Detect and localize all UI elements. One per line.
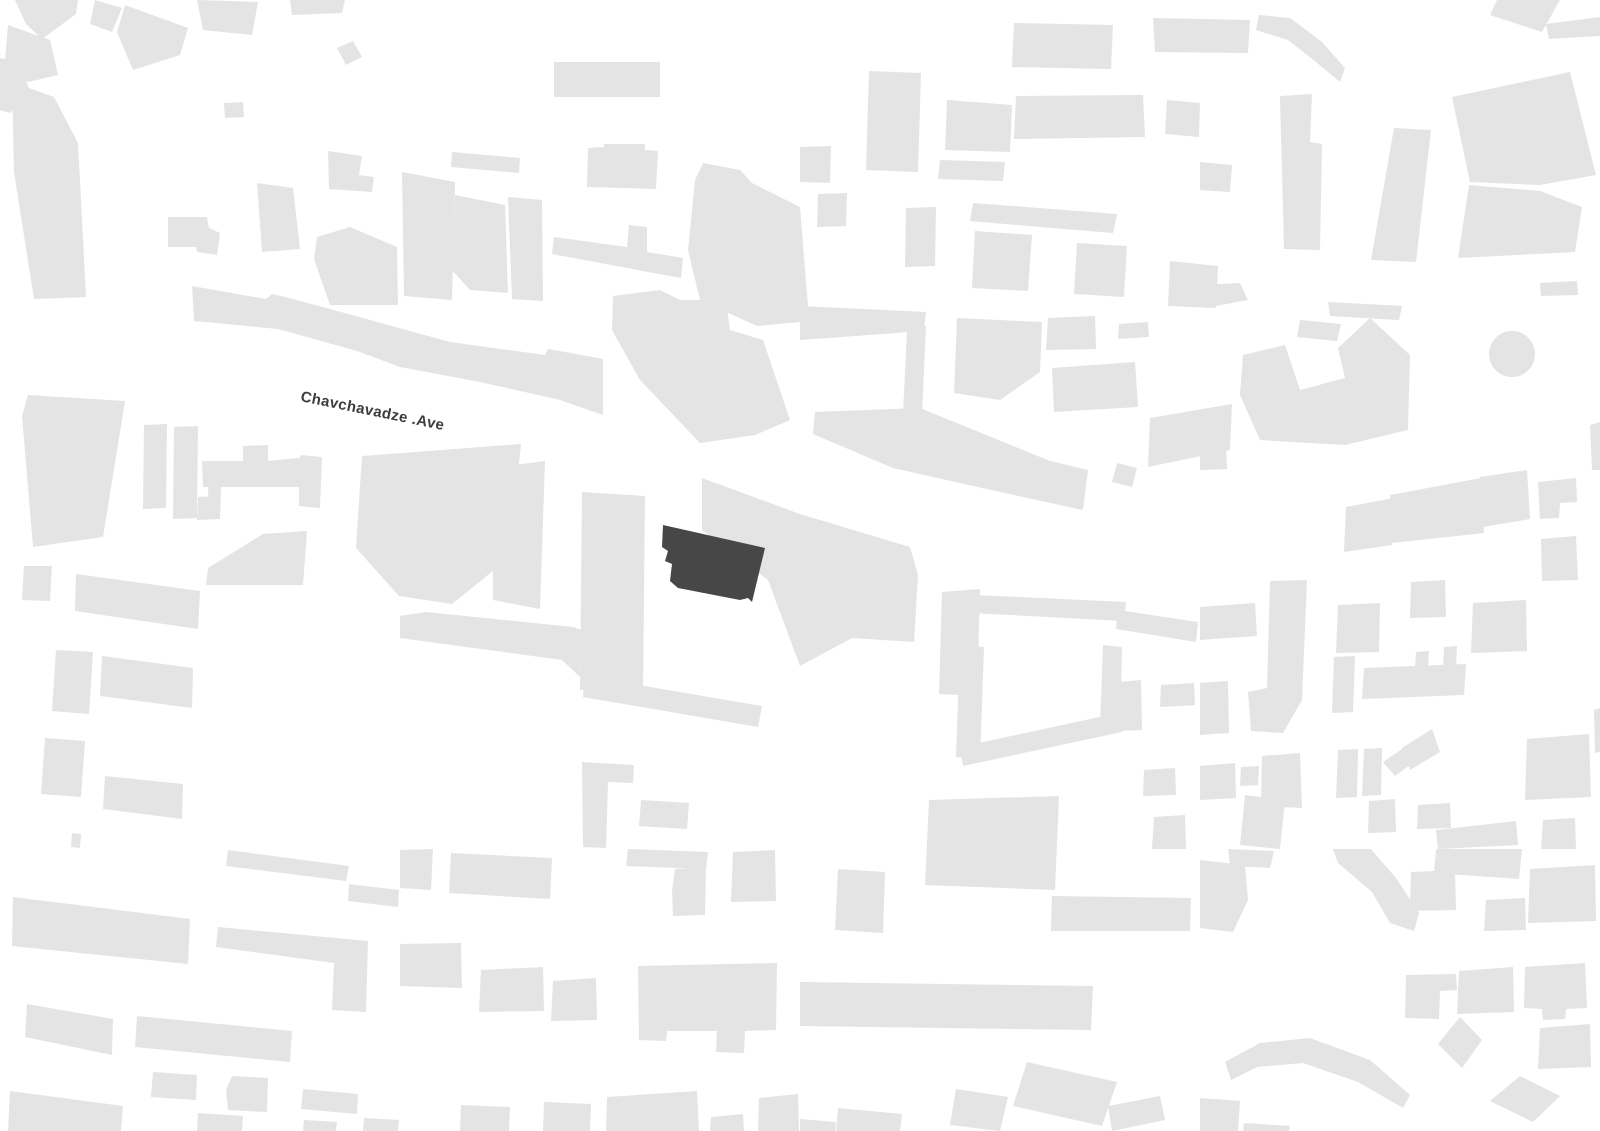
roundabout-circle xyxy=(1489,331,1535,377)
building-footprint xyxy=(1471,600,1527,653)
building-footprint xyxy=(626,849,708,869)
building-footprint xyxy=(1200,443,1227,470)
building-footprint xyxy=(41,738,85,797)
building-footprint xyxy=(1118,322,1149,339)
building-footprint xyxy=(1362,748,1382,796)
building-footprint xyxy=(1116,610,1198,642)
building-footprint xyxy=(903,326,926,415)
building-footprint xyxy=(337,41,362,65)
street-label: Chavchavadze .Ave xyxy=(299,388,446,434)
building-footprint xyxy=(1540,281,1578,296)
building-footprint xyxy=(800,982,1093,1030)
building-footprint xyxy=(400,849,433,890)
building-footprint xyxy=(1200,162,1232,192)
building-footprint xyxy=(117,5,188,70)
building-footprint xyxy=(800,1119,836,1131)
building-footprint xyxy=(1240,795,1285,849)
building-footprint xyxy=(1013,1062,1117,1126)
building-footprint xyxy=(583,676,762,727)
building-footprint xyxy=(925,796,1059,890)
building-footprint xyxy=(206,531,307,585)
building-footprint xyxy=(400,943,462,988)
building-footprint xyxy=(1200,681,1229,735)
building-footprint xyxy=(449,853,552,899)
building-footprint xyxy=(1458,185,1582,258)
building-footprint xyxy=(348,884,399,907)
building-footprint xyxy=(1160,683,1195,707)
buildings-layer xyxy=(0,0,1600,1131)
building-footprint xyxy=(1528,865,1596,923)
building-footprint xyxy=(1243,1123,1290,1131)
building-footprint xyxy=(835,869,885,933)
building-footprint xyxy=(1594,708,1600,753)
building-footprint xyxy=(52,650,93,714)
building-footprint xyxy=(451,152,520,173)
building-footprint xyxy=(1052,362,1138,412)
building-footprint xyxy=(1152,815,1186,849)
building-footprint xyxy=(1200,860,1248,932)
building-footprint xyxy=(972,231,1032,291)
building-footprint xyxy=(800,146,831,183)
building-footprint xyxy=(8,1091,123,1131)
building-footprint xyxy=(1541,818,1576,849)
building-footprint xyxy=(1200,283,1248,308)
building-footprint xyxy=(202,445,322,519)
building-footprint xyxy=(135,1016,292,1062)
building-footprint xyxy=(314,227,398,305)
building-footprint xyxy=(1143,768,1176,796)
building-footprint xyxy=(1538,1024,1591,1069)
building-footprint xyxy=(12,82,86,299)
building-footprint xyxy=(103,776,183,819)
building-footprint xyxy=(1333,849,1419,931)
building-footprint xyxy=(1452,72,1596,185)
building-footprint xyxy=(290,0,345,15)
building-footprint xyxy=(813,408,1088,510)
building-footprint xyxy=(587,144,658,189)
building-footprint xyxy=(328,151,374,192)
building-footprint xyxy=(1344,498,1394,552)
building-footprint xyxy=(905,207,936,267)
building-footprint xyxy=(192,286,603,415)
building-footprint xyxy=(580,492,645,695)
building-footprint xyxy=(710,1114,744,1131)
building-footprint xyxy=(970,203,1117,233)
building-footprint xyxy=(1538,478,1577,519)
building-footprint xyxy=(1590,422,1600,470)
building-footprint xyxy=(197,0,258,35)
building-footprint xyxy=(731,850,776,902)
building-footprint xyxy=(1362,664,1466,699)
building-footprint xyxy=(1336,603,1380,653)
site-plan-map: Chavchavadze .Ave xyxy=(0,0,1600,1131)
building-footprint xyxy=(866,71,921,172)
building-footprint xyxy=(90,0,122,32)
building-footprint xyxy=(363,1118,399,1131)
building-footprint xyxy=(1484,898,1526,931)
site-plan-page: Chavchavadze .Ave xyxy=(0,0,1600,1131)
building-footprint xyxy=(226,1076,268,1112)
building-footprint xyxy=(954,318,1042,400)
building-footprint xyxy=(1336,749,1358,798)
building-footprint xyxy=(303,1120,337,1131)
building-footprint xyxy=(1240,766,1259,786)
building-footprint xyxy=(1443,646,1457,668)
building-footprint xyxy=(22,395,125,547)
building-footprint xyxy=(817,193,847,227)
building-footprint xyxy=(639,800,689,829)
building-footprint xyxy=(1200,763,1236,800)
building-footprint xyxy=(1046,316,1096,350)
building-footprint xyxy=(22,566,52,601)
building-footprint xyxy=(1405,974,1457,1019)
building-footprint xyxy=(1200,603,1257,640)
building-footprint xyxy=(1332,656,1355,713)
building-footprint xyxy=(836,1108,902,1131)
building-footprint xyxy=(582,762,634,848)
building-footprint xyxy=(1112,463,1137,487)
building-footprint xyxy=(1165,100,1200,137)
building-footprint xyxy=(1297,320,1341,341)
building-footprint xyxy=(945,100,1012,152)
building-footprint xyxy=(400,612,581,677)
building-footprint xyxy=(143,424,167,509)
building-footprint xyxy=(301,1089,358,1114)
building-footprint xyxy=(1012,23,1113,69)
building-footprint xyxy=(1368,799,1396,833)
building-footprint xyxy=(168,217,220,255)
building-footprint xyxy=(75,574,200,629)
building-footprint xyxy=(12,897,190,964)
building-footprint xyxy=(1415,651,1429,668)
building-footprint xyxy=(508,197,543,301)
building-footprint xyxy=(758,1094,799,1131)
building-footprint xyxy=(452,195,508,293)
building-footprint xyxy=(1153,18,1250,53)
building-footprint xyxy=(257,183,300,252)
building-footprint xyxy=(606,1091,699,1131)
building-footprint xyxy=(1457,967,1514,1014)
building-footprint xyxy=(1014,95,1145,139)
building-footprint xyxy=(1541,536,1578,581)
building-footprint xyxy=(226,850,349,881)
building-footprint xyxy=(552,225,683,278)
building-footprint xyxy=(1390,478,1484,543)
building-footprint xyxy=(1546,17,1600,39)
building-footprint xyxy=(1074,243,1127,297)
building-footprint xyxy=(1248,580,1307,733)
building-footprint xyxy=(1200,1098,1240,1131)
building-footprint xyxy=(672,867,706,916)
building-footprint xyxy=(1225,1038,1410,1108)
building-footprint xyxy=(551,978,597,1021)
building-footprint xyxy=(151,1072,197,1100)
building-footprint xyxy=(1417,803,1451,829)
building-footprint xyxy=(1410,580,1446,618)
building-footprint xyxy=(1525,734,1591,800)
building-footprint xyxy=(950,1089,1008,1131)
building-footprint xyxy=(1051,896,1191,931)
building-footprint xyxy=(402,172,455,300)
building-footprint xyxy=(1108,1096,1165,1131)
building-footprint xyxy=(1371,128,1431,262)
building-footprint xyxy=(479,967,544,1012)
building-footprint xyxy=(173,426,198,519)
building-footprint xyxy=(1480,470,1530,527)
building-footprint xyxy=(1280,94,1322,250)
building-footprint xyxy=(938,160,1005,181)
building-footprint xyxy=(638,963,777,1053)
building-footprint xyxy=(71,833,81,848)
building-footprint xyxy=(1524,963,1587,1020)
building-footprint xyxy=(492,461,545,609)
building-footprint xyxy=(25,1004,113,1055)
building-footprint xyxy=(1118,680,1142,731)
building-footprint xyxy=(216,927,368,1012)
building-footprint xyxy=(1490,1076,1560,1122)
building-footprint xyxy=(197,1113,243,1131)
building-footprint xyxy=(1256,15,1345,82)
building-footprint xyxy=(100,656,193,708)
building-footprint xyxy=(543,1102,591,1131)
building-footprint xyxy=(1410,870,1456,911)
building-footprint xyxy=(554,62,660,97)
building-footprint xyxy=(224,102,244,118)
building-footprint xyxy=(460,1105,510,1131)
building-footprint xyxy=(1438,1017,1482,1068)
building-footprint xyxy=(960,713,1122,766)
building-footprint xyxy=(1328,302,1402,320)
